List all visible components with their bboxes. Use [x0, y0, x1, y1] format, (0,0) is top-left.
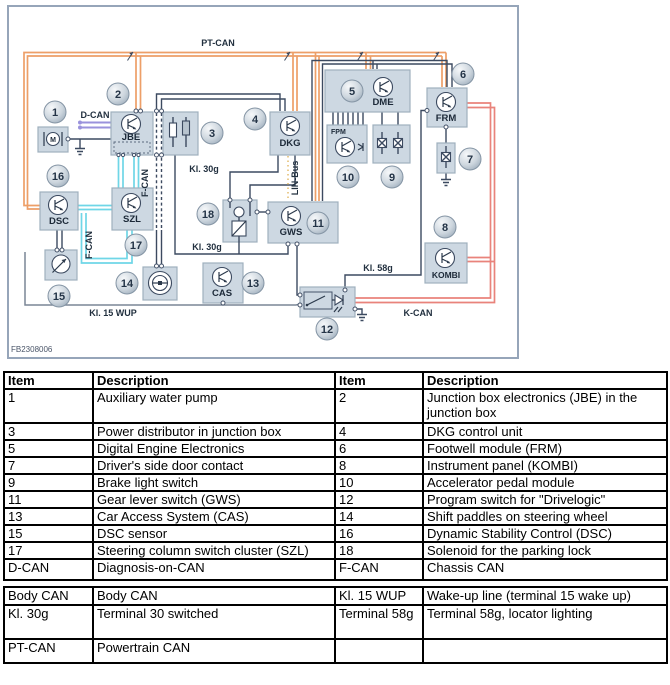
item-marker-18: 18	[197, 203, 219, 225]
item-cell: 1	[4, 389, 93, 423]
desc-cell: Auxiliary water pump	[93, 389, 335, 423]
item-cell: 16	[335, 525, 423, 542]
item-marker-10: 10	[337, 166, 359, 188]
m-pump-label: M	[50, 137, 56, 144]
kombi-label: KOMBI	[432, 270, 460, 280]
cas-label: CAS	[212, 288, 232, 299]
item-cell: PT-CAN	[4, 639, 93, 663]
desc-cell	[423, 639, 667, 663]
f-can-label-1: F-CAN	[140, 169, 150, 197]
item-marker-7: 7	[459, 148, 481, 170]
pt-can-label: PT-CAN	[201, 38, 235, 48]
item-cell: Body CAN	[4, 587, 93, 605]
item-marker-8: 8	[434, 216, 456, 238]
desc-cell: Terminal 30 switched	[93, 605, 335, 639]
item-cell: 8	[335, 457, 423, 474]
gws-label: GWS	[280, 227, 303, 238]
item-marker-13: 13	[242, 272, 264, 294]
item-cell: 14	[335, 508, 423, 525]
item-cell: 3	[4, 423, 93, 440]
item-cell: 9	[4, 474, 93, 491]
item-marker-4: 4	[244, 108, 266, 130]
legend-table-abbreviations: Body CAN Body CAN Kl. 15 WUP Wake-up lin…	[3, 586, 668, 664]
desc-cell: Dynamic Stability Control (DSC)	[423, 525, 667, 542]
kl58g-label: Kl. 58g	[363, 263, 393, 273]
jbe-label: JBE	[122, 132, 140, 143]
item-marker-9: 9	[381, 166, 403, 188]
table-row: Kl. 30g Terminal 30 switched Terminal 58…	[4, 605, 667, 639]
svg-text:1: 1	[52, 107, 58, 119]
svg-text:12: 12	[321, 324, 333, 336]
desc-cell: Driver's side door contact	[93, 457, 335, 474]
module-door-contact	[437, 143, 455, 173]
module-dsc-sensor	[45, 250, 77, 280]
bus-topology-diagram: M JBE DKG DME FPM FRM	[0, 0, 670, 365]
fpm-label: FPM	[331, 129, 346, 136]
desc-cell: DSC sensor	[93, 525, 335, 542]
table-row: D-CAN Diagnosis-on-CAN F-CAN Chassis CAN	[4, 559, 667, 580]
table-row: 17 Steering column switch cluster (SZL) …	[4, 542, 667, 559]
item-cell: 17	[4, 542, 93, 559]
item-marker-11: 11	[307, 212, 329, 234]
desc-cell: Body CAN	[93, 587, 335, 605]
desc-cell: Program switch for "Drivelogic"	[423, 491, 667, 508]
table-row: PT-CAN Powertrain CAN	[4, 639, 667, 663]
item-marker-6: 6	[452, 63, 474, 85]
svg-text:6: 6	[460, 69, 466, 81]
svg-text:3: 3	[209, 128, 215, 140]
table-row: 3 Power distributor in junction box 4 DK…	[4, 423, 667, 440]
item-cell: 15	[4, 525, 93, 542]
desc-cell: DKG control unit	[423, 423, 667, 440]
f-can-label-2: F-CAN	[84, 231, 94, 259]
module-shift-paddles	[143, 267, 177, 300]
item-cell: 7	[4, 457, 93, 474]
svg-text:8: 8	[442, 222, 448, 234]
kl15wup-label: Kl. 15 WUP	[89, 308, 137, 318]
svg-text:9: 9	[389, 172, 395, 184]
col-header-item-left: Item	[4, 372, 93, 389]
item-marker-14: 14	[116, 272, 138, 294]
svg-text:2: 2	[115, 89, 121, 101]
col-header-item-right: Item	[335, 372, 423, 389]
module-dme: DME	[325, 70, 410, 112]
svg-text:16: 16	[52, 171, 64, 183]
svg-text:17: 17	[130, 240, 142, 252]
module-dkg: DKG	[270, 112, 310, 155]
item-cell: F-CAN	[335, 559, 423, 580]
dsc-label: DSC	[49, 216, 69, 227]
item-marker-12: 12	[316, 318, 338, 340]
table-row: 1 Auxiliary water pump 2 Junction box el…	[4, 389, 667, 423]
frm-label: FRM	[436, 113, 457, 124]
d-can-label: D-CAN	[81, 110, 110, 120]
desc-cell: Digital Engine Electronics	[93, 440, 335, 457]
svg-text:10: 10	[342, 172, 354, 184]
item-marker-1: 1	[44, 101, 66, 123]
item-cell: 2	[335, 389, 423, 423]
module-brake-light-switch	[373, 125, 410, 163]
dme-label: DME	[372, 97, 393, 108]
desc-cell: Shift paddles on steering wheel	[423, 508, 667, 525]
desc-cell: Diagnosis-on-CAN	[93, 559, 335, 580]
svg-text:13: 13	[247, 278, 259, 290]
table-row: 7 Driver's side door contact 8 Instrumen…	[4, 457, 667, 474]
item-marker-5: 5	[341, 80, 363, 102]
module-power-distributor	[163, 112, 198, 155]
item-cell: 12	[335, 491, 423, 508]
desc-cell: Powertrain CAN	[93, 639, 335, 663]
col-header-desc-right: Description	[423, 372, 667, 389]
desc-cell: Car Access System (CAS)	[93, 508, 335, 525]
item-cell: Kl. 15 WUP	[335, 587, 423, 605]
item-cell	[335, 639, 423, 663]
desc-cell: Accelerator pedal module	[423, 474, 667, 491]
module-jbe: JBE	[111, 112, 153, 155]
module-aux-water-pump: M	[38, 127, 68, 152]
desc-cell: Gear lever switch (GWS)	[93, 491, 335, 508]
desc-cell: Instrument panel (KOMBI)	[423, 457, 667, 474]
lin-bus-label: LIN-Bus	[290, 161, 300, 196]
legend-table-items: Item Description Item Description 1 Auxi…	[3, 371, 668, 581]
desc-cell: Brake light switch	[93, 474, 335, 491]
table-row: 15 DSC sensor 16 Dynamic Stability Contr…	[4, 525, 667, 542]
item-cell: 11	[4, 491, 93, 508]
svg-text:18: 18	[202, 209, 214, 221]
desc-cell: Power distributor in junction box	[93, 423, 335, 440]
svg-text:15: 15	[53, 291, 65, 303]
svg-text:11: 11	[312, 218, 324, 230]
kl30g-label-2: Kl. 30g	[192, 242, 222, 252]
item-cell: D-CAN	[4, 559, 93, 580]
desc-cell: Terminal 58g, locator lighting	[423, 605, 667, 639]
module-dsc: DSC	[40, 192, 78, 230]
table-row: 5 Digital Engine Electronics 6 Footwell …	[4, 440, 667, 457]
desc-cell: Wake-up line (terminal 15 wake up)	[423, 587, 667, 605]
desc-cell: Solenoid for the parking lock	[423, 542, 667, 559]
item-cell: 5	[4, 440, 93, 457]
table-row: 11 Gear lever switch (GWS) 12 Program sw…	[4, 491, 667, 508]
page: M JBE DKG DME FPM FRM	[0, 0, 670, 685]
figure-id: FB2308006	[11, 345, 53, 354]
item-marker-15: 15	[48, 285, 70, 307]
k-can-label: K-CAN	[404, 308, 433, 318]
item-marker-16: 16	[47, 165, 69, 187]
dkg-label: DKG	[279, 138, 300, 149]
module-cas: CAS	[203, 263, 243, 303]
module-fpm: FPM	[327, 125, 367, 163]
item-marker-2: 2	[107, 83, 129, 105]
table-row: 13 Car Access System (CAS) 14 Shift padd…	[4, 508, 667, 525]
svg-text:4: 4	[252, 114, 259, 126]
item-cell: 18	[335, 542, 423, 559]
svg-text:7: 7	[467, 154, 473, 166]
item-cell: 4	[335, 423, 423, 440]
svg-text:5: 5	[349, 86, 355, 98]
item-marker-17: 17	[125, 234, 147, 256]
desc-cell: Footwell module (FRM)	[423, 440, 667, 457]
desc-cell: Chassis CAN	[423, 559, 667, 580]
item-cell: Kl. 30g	[4, 605, 93, 639]
module-frm: FRM	[427, 88, 467, 127]
item-cell: 13	[4, 508, 93, 525]
szl-label: SZL	[123, 214, 141, 225]
table-row: Body CAN Body CAN Kl. 15 WUP Wake-up lin…	[4, 587, 667, 605]
item-cell: 6	[335, 440, 423, 457]
item-marker-3: 3	[201, 122, 223, 144]
desc-cell: Steering column switch cluster (SZL)	[93, 542, 335, 559]
item-cell: 10	[335, 474, 423, 491]
desc-cell: Junction box electronics (JBE) in the ju…	[423, 389, 667, 423]
module-kombi: KOMBI	[425, 243, 467, 283]
svg-text:14: 14	[121, 278, 134, 290]
kl30g-label-1: Kl. 30g	[189, 164, 219, 174]
col-header-desc-left: Description	[93, 372, 335, 389]
item-cell: Terminal 58g	[335, 605, 423, 639]
table-row: 9 Brake light switch 10 Accelerator peda…	[4, 474, 667, 491]
